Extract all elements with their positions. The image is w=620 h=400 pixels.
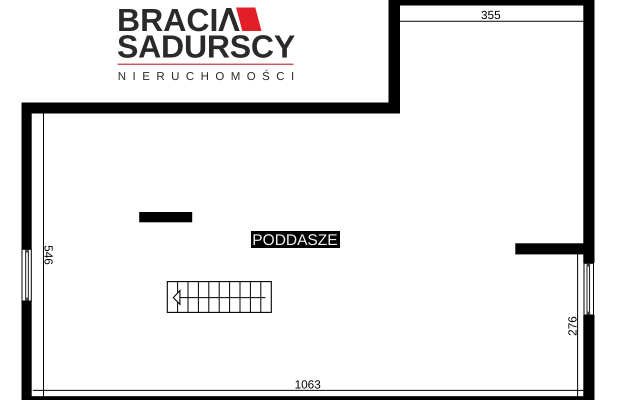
svg-text:NIERUCHOMOŚCI: NIERUCHOMOŚCI <box>118 69 301 83</box>
svg-text:355: 355 <box>481 8 501 22</box>
svg-text:546: 546 <box>42 245 56 265</box>
svg-text:276: 276 <box>566 316 580 336</box>
svg-text:PODDASZE: PODDASZE <box>252 232 337 249</box>
svg-text:1063: 1063 <box>295 378 322 392</box>
svg-text:SADURSCY: SADURSCY <box>117 29 295 65</box>
